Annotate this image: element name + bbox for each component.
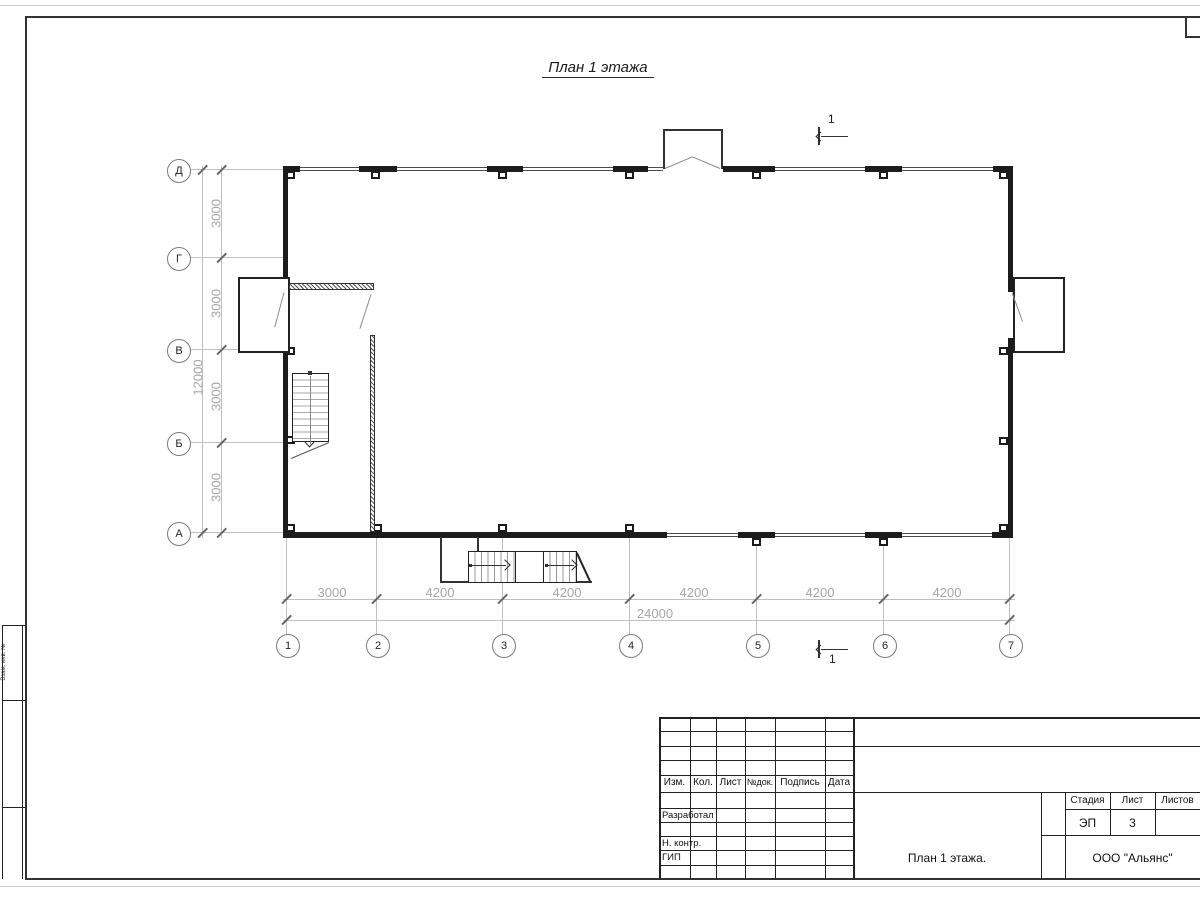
window-band	[300, 167, 359, 171]
titleblock-line	[659, 746, 853, 747]
stair-edge	[577, 581, 592, 583]
dim-text-total: 12000	[191, 348, 206, 408]
column-mark	[371, 171, 380, 179]
door-leaf	[692, 156, 720, 169]
axis-bubble: 4	[619, 634, 643, 658]
stair-flight	[468, 551, 517, 583]
window-band	[902, 533, 992, 537]
margin-table-line	[2, 807, 26, 808]
wall	[283, 532, 667, 538]
titleblock-line	[659, 717, 661, 879]
column-mark	[498, 171, 507, 179]
axis-bubble: 6	[873, 634, 897, 658]
axis-bubble: А	[167, 522, 191, 546]
vestibule-wall	[663, 129, 665, 169]
entrance-wall	[440, 581, 469, 583]
stage-value: ЭП	[1065, 816, 1110, 830]
titleblock-col-header: Изм.	[659, 777, 690, 788]
partition-wall	[289, 283, 374, 290]
frame-top	[25, 16, 1200, 18]
paper-edge-bottom	[0, 886, 1200, 887]
titleblock-line	[745, 717, 746, 879]
dim-text: 4200	[664, 585, 724, 600]
dim-text: 4200	[537, 585, 597, 600]
window-band	[902, 167, 993, 171]
entrance-wall	[440, 537, 442, 583]
frame-left	[25, 16, 27, 880]
column-mark	[286, 524, 295, 532]
axis-bubble: 5	[746, 634, 770, 658]
column-mark	[752, 538, 761, 546]
column-mark	[752, 171, 761, 179]
titleblock-line	[659, 760, 853, 761]
titleblock-line	[659, 775, 853, 776]
wall	[723, 166, 775, 172]
dim-text: 4200	[410, 585, 470, 600]
titleblock-col-header: Дата	[825, 777, 853, 788]
titleblock-line	[659, 822, 853, 823]
margin-table-line	[22, 625, 23, 879]
dim-text: 4200	[790, 585, 850, 600]
axis-bubble: Д	[167, 159, 191, 183]
titleblock-line	[853, 746, 1200, 747]
window-band	[667, 533, 738, 537]
dim-text: 3000	[209, 274, 224, 334]
porch-left	[238, 277, 290, 353]
door-leaf	[359, 294, 371, 329]
stair-arrow-shaft	[310, 376, 311, 444]
titleblock-line	[690, 717, 691, 879]
axis-bubble: Г	[167, 247, 191, 271]
corner-box-left	[1185, 16, 1187, 38]
sheet-header: Лист	[1110, 795, 1155, 806]
vestibule-wall	[721, 129, 723, 169]
column-mark	[625, 171, 634, 179]
titleblock-line	[659, 717, 1200, 719]
titleblock-col-header: Подпись	[775, 777, 825, 788]
axis-bubble: 2	[366, 634, 390, 658]
titleblock-col-header: Кол.	[690, 777, 716, 788]
titleblock-col-header: Лист	[716, 777, 745, 788]
titleblock-col-header: №док.	[745, 777, 775, 787]
wall	[283, 166, 288, 290]
axis-bubble: 3	[492, 634, 516, 658]
wall	[992, 532, 1013, 538]
dim-text-total: 24000	[625, 606, 685, 621]
stair-edge	[576, 552, 591, 583]
paper-edge-top	[0, 5, 1200, 6]
axis-bubble: Б	[167, 432, 191, 456]
vestibule-wall	[663, 129, 723, 131]
stair-landing	[515, 551, 545, 583]
window-band	[523, 167, 613, 171]
dim-text: 4200	[917, 585, 977, 600]
stair-arrow-start	[308, 371, 312, 375]
dim-text: 3000	[302, 585, 362, 600]
column-mark	[625, 524, 634, 532]
dim-line-bottom	[283, 599, 1015, 600]
column-mark	[999, 171, 1008, 179]
titleblock-line	[659, 836, 853, 837]
frame-bottom	[25, 878, 1200, 880]
entrance-wall	[477, 537, 479, 552]
titleblock-line	[659, 865, 853, 866]
column-mark	[286, 171, 295, 179]
titleblock-line	[1041, 835, 1200, 836]
door-leaf	[665, 156, 693, 169]
titleblock-line	[716, 717, 717, 879]
titleblock-line	[659, 731, 853, 732]
titleblock-line	[659, 850, 853, 851]
section-number: 1	[829, 652, 836, 666]
titleblock-line	[1065, 809, 1200, 810]
titleblock-line	[659, 808, 853, 809]
titleblock-row-label: Разработал	[662, 810, 714, 821]
partition-wall	[370, 335, 375, 532]
sheet-value: 3	[1110, 816, 1155, 830]
wall	[1008, 166, 1013, 292]
titleblock-line	[825, 717, 826, 879]
margin-stamp-label: Взам. инв. №	[1, 625, 11, 699]
window-band	[648, 167, 663, 171]
dim-text: 3000	[209, 184, 224, 244]
dim-text: 3000	[209, 458, 224, 518]
sheets-header: Листов	[1155, 795, 1200, 806]
window-band	[397, 167, 487, 171]
axis-bubble: 1	[276, 634, 300, 658]
titleblock-line	[775, 717, 776, 879]
column-mark	[999, 524, 1008, 532]
column-mark	[498, 524, 507, 532]
axis-line	[189, 257, 284, 258]
wall	[1008, 338, 1013, 533]
column-mark	[999, 437, 1008, 445]
margin-table-line	[2, 700, 26, 701]
window-band	[775, 167, 865, 171]
wall	[283, 335, 288, 533]
corner-box-bottom	[1185, 36, 1200, 38]
drawing-sheet: Взам. инв. № План 1 этажа 1 1 3000 3000 …	[0, 0, 1200, 900]
column-mark	[879, 171, 888, 179]
axis-bubble: 7	[999, 634, 1023, 658]
dim-text: 3000	[209, 367, 224, 427]
company-name: ООО "Альянс"	[1065, 851, 1200, 865]
doc-title: План 1 этажа.	[853, 851, 1041, 865]
window-band	[775, 533, 865, 537]
axis-bubble: В	[167, 339, 191, 363]
column-mark	[879, 538, 888, 546]
drawing-title: План 1 этажа	[498, 59, 698, 78]
titleblock-line	[659, 792, 1200, 793]
stage-header: Стадия	[1065, 795, 1110, 806]
titleblock-row-label: ГИП	[662, 852, 681, 863]
titleblock-row-label: Н. контр.	[662, 838, 701, 849]
column-mark	[999, 347, 1008, 355]
axis-line	[189, 442, 284, 443]
section-number: 1	[828, 112, 835, 126]
